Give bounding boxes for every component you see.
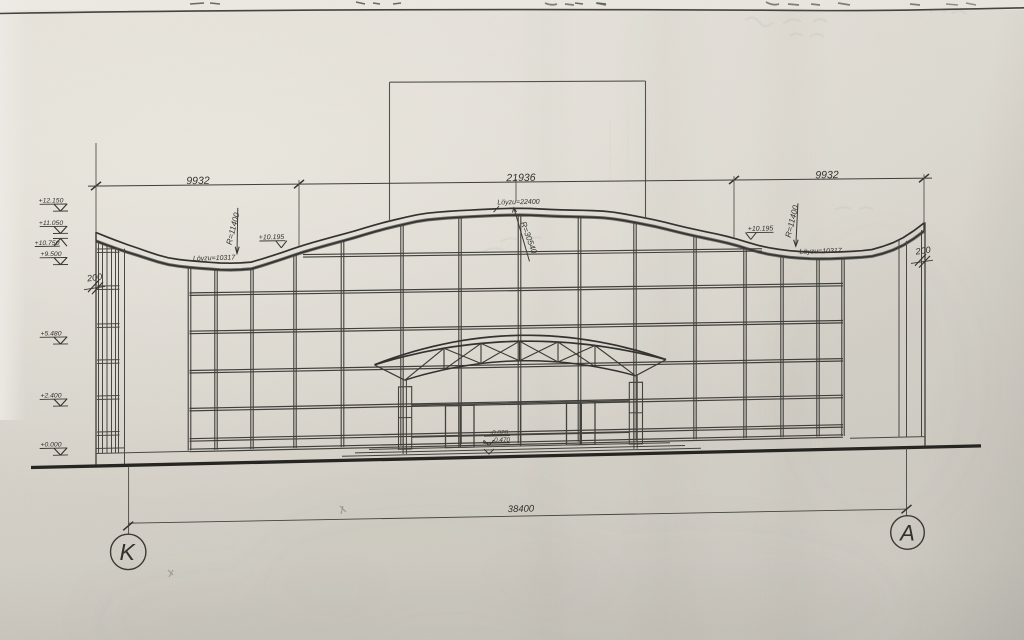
svg-text:+9.500: +9.500	[41, 251, 62, 258]
svg-text:38400: 38400	[508, 504, 535, 516]
svg-text:+5.480: +5.480	[41, 331, 62, 338]
svg-text:9932: 9932	[186, 175, 210, 187]
svg-text:+11.050: +11.050	[39, 220, 63, 227]
svg-text:Löyzu=22400: Löyzu=22400	[497, 199, 539, 207]
svg-text:+2.400: +2.400	[41, 393, 62, 400]
svg-text:+10.195: +10.195	[748, 225, 774, 232]
svg-text:K: K	[120, 539, 137, 565]
svg-text:+12.150: +12.150	[39, 198, 64, 205]
svg-text:Löyzu=10317: Löyzu=10317	[193, 255, 237, 263]
svg-text:Löyzu=10317: Löyzu=10317	[799, 248, 843, 256]
svg-text:+10.195: +10.195	[259, 234, 285, 241]
svg-text:A: A	[898, 521, 915, 546]
svg-text:21936: 21936	[505, 172, 536, 184]
svg-text:9932: 9932	[815, 169, 839, 181]
